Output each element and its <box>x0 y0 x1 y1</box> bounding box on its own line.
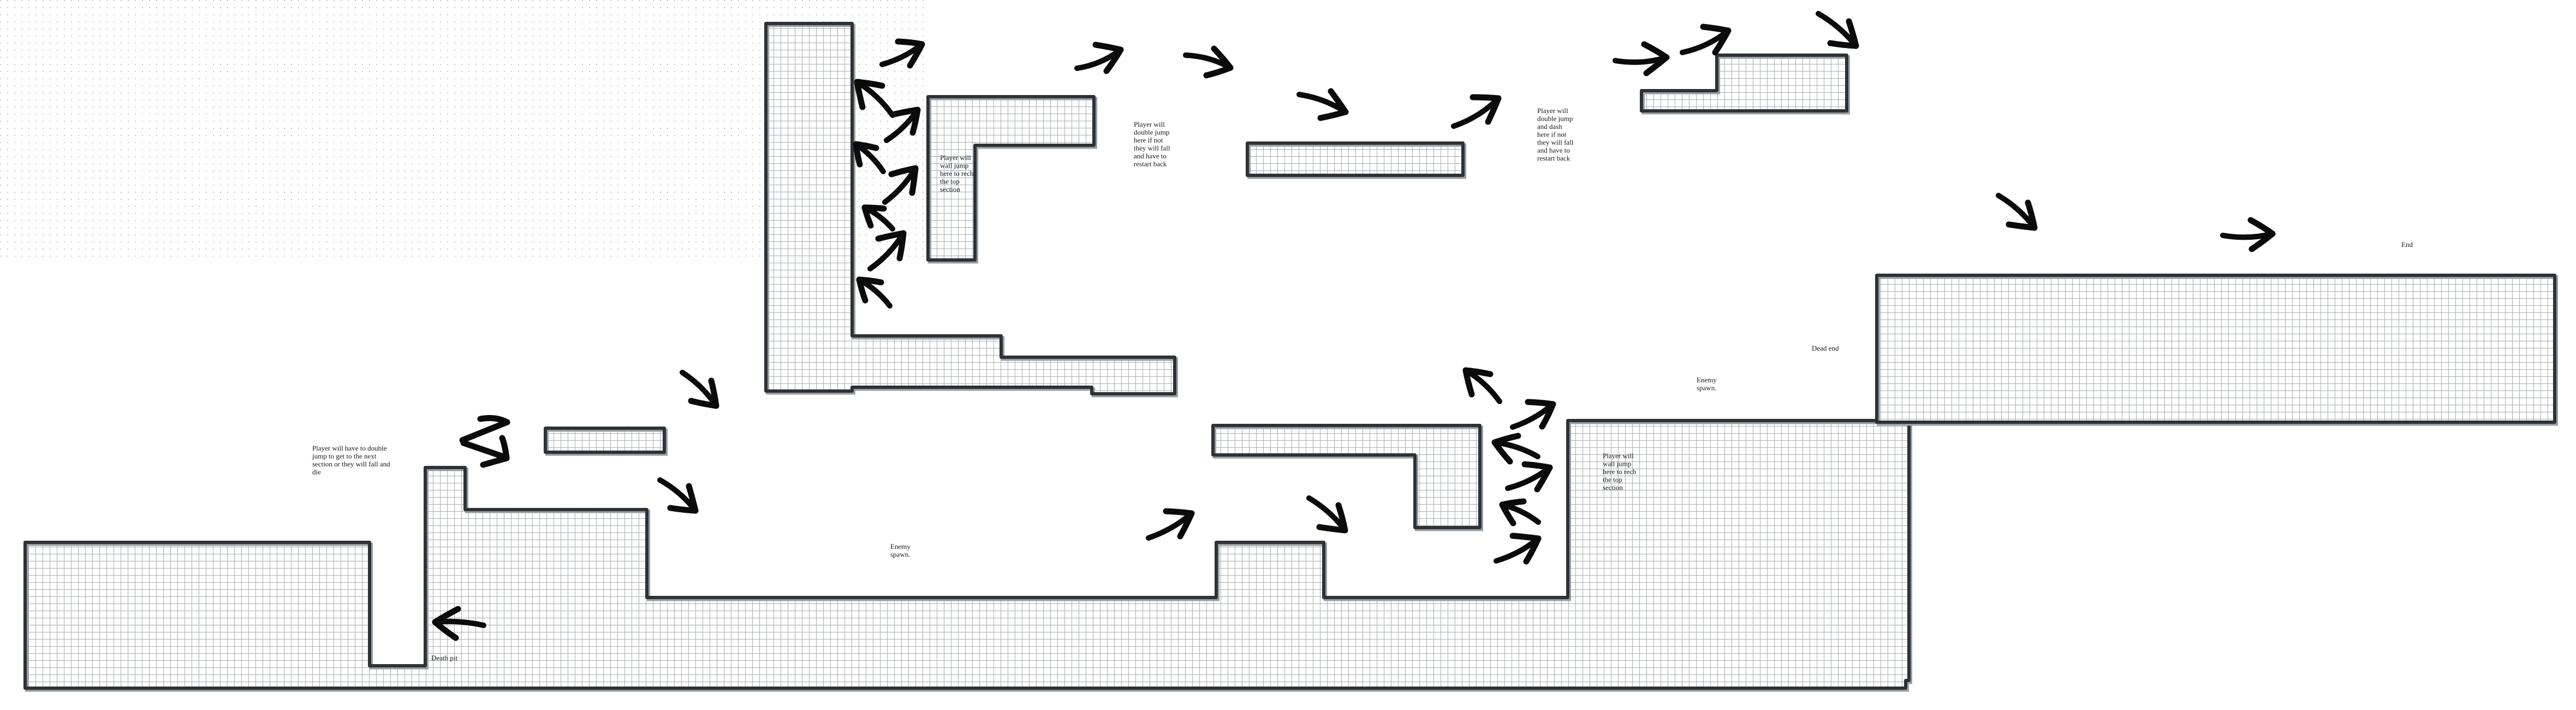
svg-text:Player will: Player will <box>940 153 971 162</box>
svg-text:section: section <box>940 185 960 193</box>
svg-text:they will fall: they will fall <box>1134 144 1170 152</box>
svg-text:jump to get to the next: jump to get to the next <box>312 452 377 460</box>
svg-text:the top: the top <box>1603 476 1622 484</box>
svg-text:section or they will fall and: section or they will fall and <box>312 460 390 468</box>
svg-text:End: End <box>2401 240 2413 248</box>
svg-text:Death pit: Death pit <box>431 654 457 662</box>
svg-text:spawn.: spawn. <box>1697 384 1716 392</box>
svg-text:restart back: restart back <box>1134 160 1167 168</box>
svg-text:Player will have to double: Player will have to double <box>312 444 387 452</box>
svg-text:spawn.: spawn. <box>890 551 910 559</box>
svg-text:restart back: restart back <box>1537 154 1570 162</box>
svg-text:die: die <box>312 468 321 476</box>
svg-text:Player will: Player will <box>1603 452 1634 460</box>
svg-text:wall jump: wall jump <box>1603 460 1631 468</box>
svg-text:Enemy: Enemy <box>890 542 911 551</box>
svg-text:here if not: here if not <box>1537 131 1567 139</box>
svg-text:Dead end: Dead end <box>1812 344 1839 352</box>
svg-text:Player will: Player will <box>1537 106 1568 115</box>
svg-text:and dash: and dash <box>1537 122 1562 131</box>
svg-text:Player will: Player will <box>1134 120 1165 128</box>
svg-text:and have to: and have to <box>1134 152 1167 160</box>
svg-text:wall jump: wall jump <box>940 162 968 170</box>
svg-text:here if not: here if not <box>1134 136 1163 144</box>
svg-text:Enemy: Enemy <box>1697 376 1717 384</box>
svg-text:the top: the top <box>940 177 960 186</box>
svg-text:they will fall: they will fall <box>1537 138 1574 146</box>
svg-text:and have to: and have to <box>1537 146 1570 155</box>
svg-text:double jump: double jump <box>1134 128 1169 137</box>
svg-text:double jump: double jump <box>1537 115 1573 123</box>
svg-text:here to rech: here to rech <box>940 169 974 177</box>
svg-text:here to rech: here to rech <box>1603 468 1637 476</box>
svg-text:section: section <box>1603 483 1623 492</box>
